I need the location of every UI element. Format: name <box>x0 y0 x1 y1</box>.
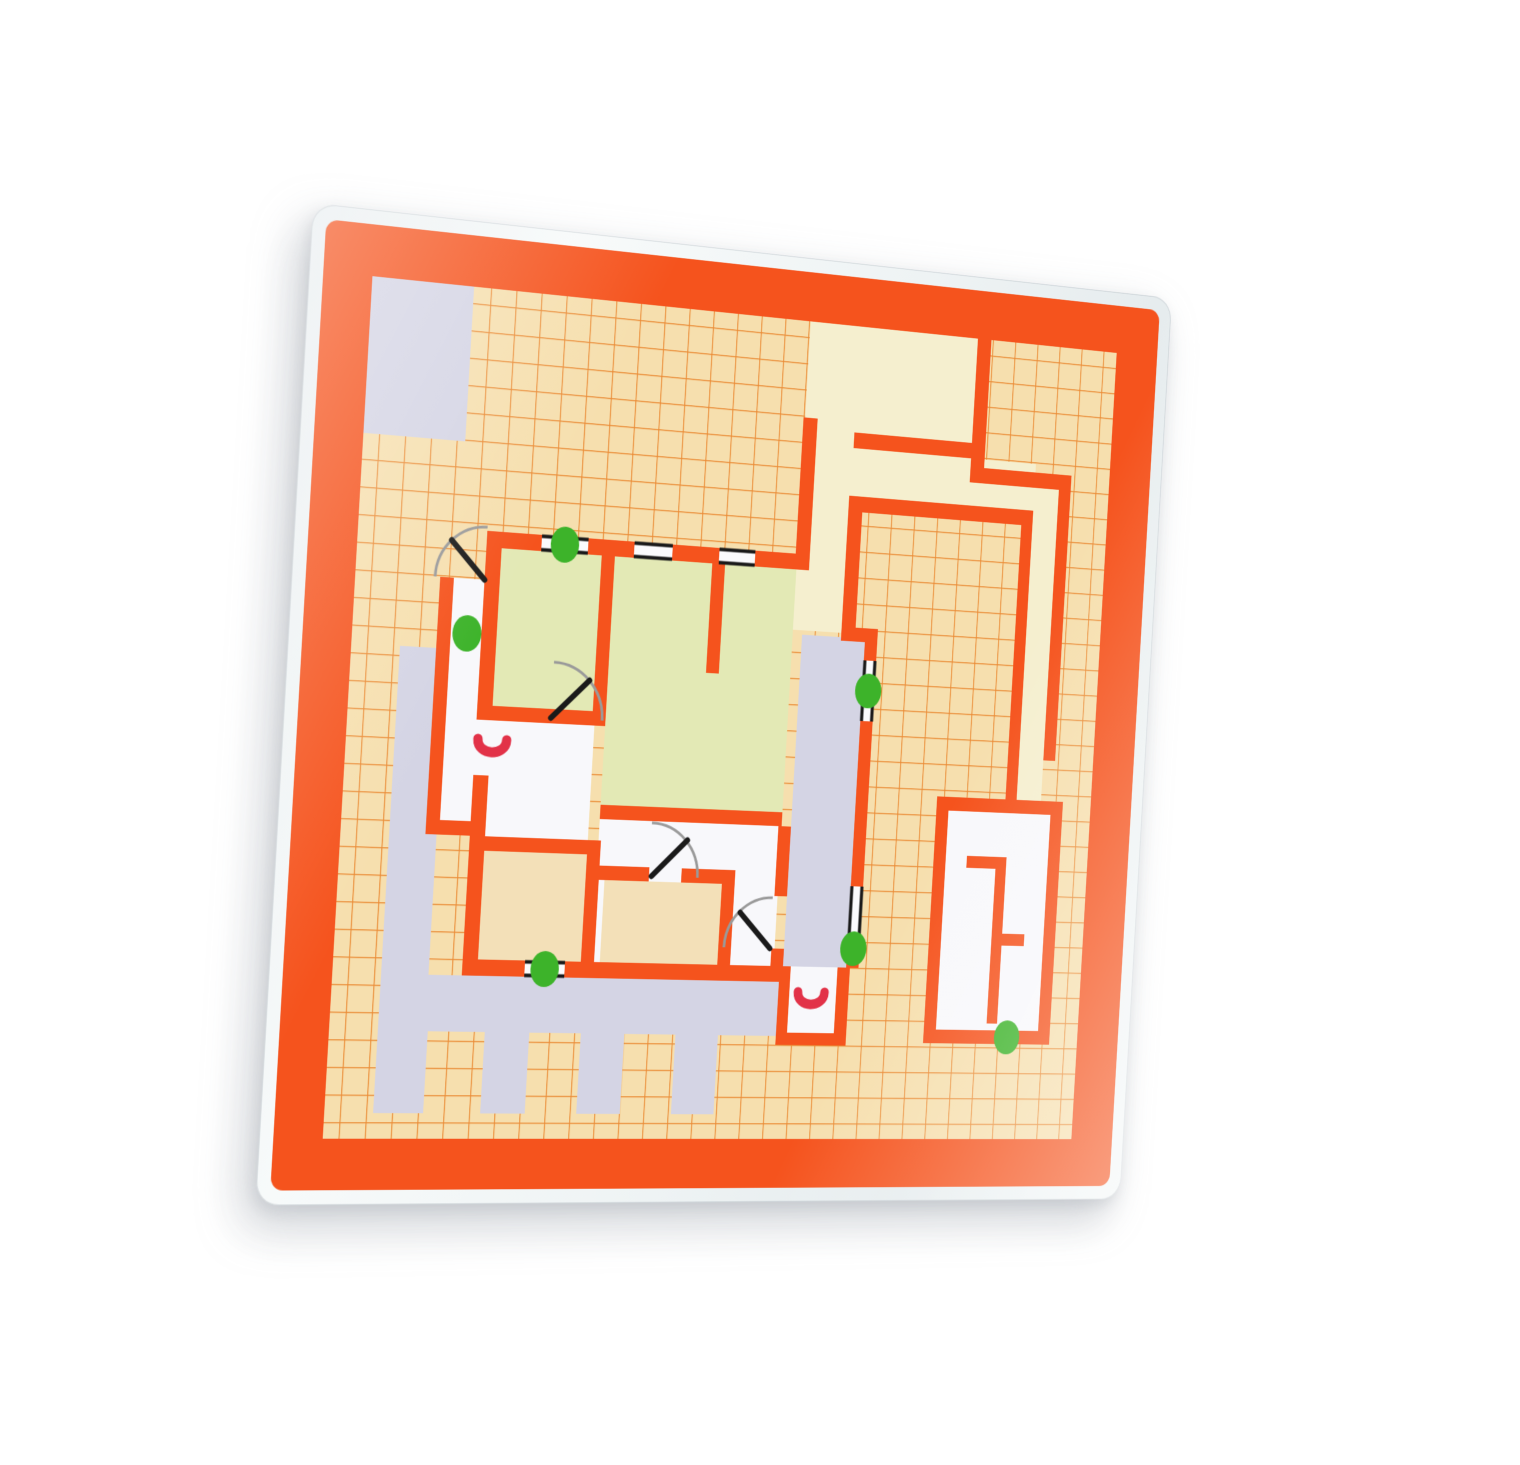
tan-room-south-1 <box>478 851 587 962</box>
east-room-stub-right <box>1001 934 1024 946</box>
cream-top-band <box>805 321 978 443</box>
east-room-south-wall <box>923 1029 1050 1044</box>
cream-corridor-opening <box>816 429 854 448</box>
photo-scene <box>287 168 1367 1248</box>
floor-plan-graphic <box>255 203 1172 1206</box>
tan-room-south-2 <box>600 880 722 965</box>
white-room-west <box>485 720 594 840</box>
porch-south-wall <box>425 819 485 836</box>
green-room-north <box>600 556 797 826</box>
lavender-patch-top-left <box>363 276 474 441</box>
tan2-north-wall-left <box>591 865 649 881</box>
laminated-floor-plan-card <box>255 203 1172 1206</box>
